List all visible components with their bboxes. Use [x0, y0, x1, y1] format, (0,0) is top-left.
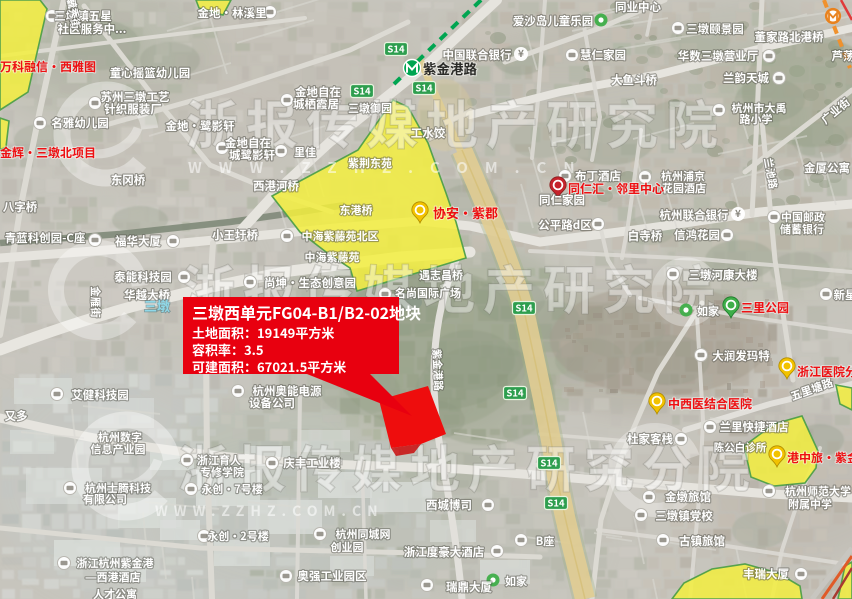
svg-text:慧仁家园: 慧仁家园	[580, 47, 626, 63]
svg-text:—西港酒店: —西港酒店	[86, 569, 141, 585]
svg-text:青蓝科创园-C座: 青蓝科创园-C座	[5, 230, 86, 246]
svg-text:芦荡: 芦荡	[832, 48, 852, 64]
svg-text:路小学: 路小学	[740, 111, 773, 127]
svg-text:S14: S14	[547, 496, 565, 510]
svg-text:如家: 如家	[505, 573, 528, 589]
svg-text:陈公白诊所: 陈公白诊所	[714, 440, 767, 455]
svg-text:金地·鹭影轩: 金地·鹭影轩	[166, 118, 235, 134]
svg-text:遇志昌桥: 遇志昌桥	[419, 267, 463, 283]
svg-text:永创·2号楼: 永创·2号楼	[207, 528, 269, 544]
svg-text:泰能科技园: 泰能科技园	[114, 269, 172, 285]
svg-text:紫金港路: 紫金港路	[423, 58, 477, 78]
svg-text:紫荆东苑: 紫荆东苑	[348, 155, 392, 171]
svg-text:港中旅·紫金: 港中旅·紫金	[787, 449, 852, 466]
svg-text:西港河桥: 西港河桥	[253, 178, 299, 194]
svg-text:福华大厦: 福华大厦	[115, 233, 161, 249]
svg-text:设备公司: 设备公司	[249, 395, 295, 411]
svg-text:金辉·三墩北项目: 金辉·三墩北项目	[0, 144, 96, 161]
svg-text:信鸿花园: 信鸿花园	[674, 227, 720, 243]
svg-text:兰里快捷酒店: 兰里快捷酒店	[720, 419, 789, 435]
svg-text:又多: 又多	[5, 408, 28, 424]
svg-text:小王圩桥: 小王圩桥	[212, 227, 258, 243]
svg-text:兰韵天城: 兰韵天城	[723, 70, 769, 86]
svg-text:有限公司: 有限公司	[83, 491, 127, 507]
svg-text:花园酒店: 花园酒店	[662, 180, 706, 196]
svg-text:奥强工业园区: 奥强工业园区	[298, 568, 367, 584]
svg-text:金墩旅馆: 金墩旅馆	[665, 489, 711, 505]
svg-text:名尚国际广场: 名尚国际广场	[395, 285, 461, 301]
svg-text:金厦公寓: 金厦公寓	[804, 160, 850, 176]
svg-text:¥: ¥	[735, 205, 741, 220]
svg-text:中海紫藤苑: 中海紫藤苑	[305, 249, 360, 265]
svg-text:协安·紫郡: 协安·紫郡	[433, 203, 498, 222]
svg-text:可建面积：67021.5平方米: 可建面积：67021.5平方米	[192, 357, 346, 376]
svg-text:董家路北港桥: 董家路北港桥	[755, 29, 824, 45]
svg-text:S14: S14	[515, 301, 533, 315]
svg-text:三墩镇党校: 三墩镇党校	[655, 508, 713, 524]
svg-text:中海紫藤苑北区: 中海紫藤苑北区	[302, 228, 379, 244]
svg-text:信息产业园: 信息产业园	[91, 441, 146, 457]
svg-text:城栖霞居: 城栖霞居	[293, 96, 339, 112]
svg-text:人才公寓: 人才公寓	[93, 586, 137, 599]
svg-text:大鱼斗桥: 大鱼斗桥	[611, 72, 657, 88]
svg-text:白寺桥: 白寺桥	[628, 228, 663, 244]
svg-text:丰瑞大厦: 丰瑞大厦	[743, 566, 789, 582]
svg-text:¥: ¥	[518, 45, 524, 60]
svg-text:工水饺: 工水饺	[411, 125, 446, 141]
svg-text:三墩河康大楼: 三墩河康大楼	[689, 267, 758, 283]
svg-text:金地·林溪里: 金地·林溪里	[198, 5, 267, 21]
svg-text:B座: B座	[536, 533, 555, 549]
svg-text:紫金港路: 紫金港路	[429, 348, 446, 391]
svg-text:浙江医院分: 浙江医院分	[797, 363, 852, 380]
svg-text:爱沙岛儿童乐园: 爱沙岛儿童乐园	[513, 13, 594, 29]
svg-text:古镇旅馆: 古镇旅馆	[679, 533, 725, 549]
svg-text:浙江度豪大酒店: 浙江度豪大酒店	[404, 544, 485, 560]
svg-text:东港桥: 东港桥	[340, 202, 373, 218]
svg-text:三墩西单元FG04-B1/B2-02地块: 三墩西单元FG04-B1/B2-02地块	[192, 300, 421, 324]
svg-text:同仁汇·邻里中心: 同仁汇·邻里中心	[568, 180, 664, 197]
svg-text:专修学院: 专修学院	[200, 464, 244, 480]
svg-text:童心摇篮幼儿园: 童心摇篮幼儿园	[110, 65, 191, 81]
svg-text:同业中心: 同业中心	[615, 0, 661, 15]
svg-text:里佳: 里佳	[294, 144, 316, 160]
svg-text:S14: S14	[353, 84, 371, 98]
svg-text:针织服装厂: 针织服装厂	[104, 101, 162, 117]
svg-text:城鹭影轩: 城鹭影轩	[229, 147, 275, 163]
svg-text:三里公园: 三里公园	[741, 299, 789, 316]
svg-text:S14: S14	[387, 42, 405, 56]
svg-text:中西医结合医院: 中西医结合医院	[668, 395, 752, 412]
svg-text:三墩御园: 三墩御园	[348, 100, 392, 116]
svg-text:附属中学: 附属中学	[788, 496, 832, 512]
svg-text:庆丰工业楼: 庆丰工业楼	[283, 455, 341, 471]
svg-text:东冈桥: 东冈桥	[111, 172, 146, 188]
svg-text:储蓄银行: 储蓄银行	[780, 221, 824, 237]
svg-text:公平路d区: 公平路d区	[538, 217, 592, 233]
svg-text:西城博司: 西城博司	[426, 497, 472, 513]
svg-text:华数三墩营业厅: 华数三墩营业厅	[678, 48, 759, 64]
svg-text:如家: 如家	[697, 303, 720, 319]
svg-text:大润发玛特: 大润发玛特	[712, 348, 770, 364]
svg-text:八字桥: 八字桥	[3, 199, 38, 215]
svg-text:杭州联合银行: 杭州联合银行	[660, 207, 729, 223]
svg-text:S14: S14	[415, 81, 433, 95]
svg-text:永创·7号楼: 永创·7号楼	[201, 481, 263, 497]
svg-text:S14: S14	[506, 386, 524, 400]
svg-text:WWW.ZZHZ.COM.CN: WWW.ZZHZ.COM.CN	[155, 501, 384, 521]
svg-text:三墩颐景园: 三墩颐景园	[686, 21, 744, 37]
svg-text:三墩: 三墩	[144, 296, 170, 315]
svg-text:创业园: 创业园	[331, 539, 364, 555]
svg-text:S14: S14	[540, 456, 558, 470]
svg-text:杜家客栈: 杜家客栈	[627, 431, 673, 447]
svg-text:万科融信·西雅图: 万科融信·西雅图	[0, 58, 96, 75]
svg-text:艾健科技园: 艾健科技园	[71, 387, 129, 403]
svg-text:金雁街: 金雁街	[88, 286, 103, 318]
svg-text:新星: 新星	[834, 287, 852, 303]
svg-text:名雅幼儿园: 名雅幼儿园	[51, 115, 109, 131]
svg-text:尚坤·生态创意园: 尚坤·生态创意园	[264, 275, 356, 291]
svg-text:瑞鼎大厦: 瑞鼎大厦	[446, 579, 492, 595]
